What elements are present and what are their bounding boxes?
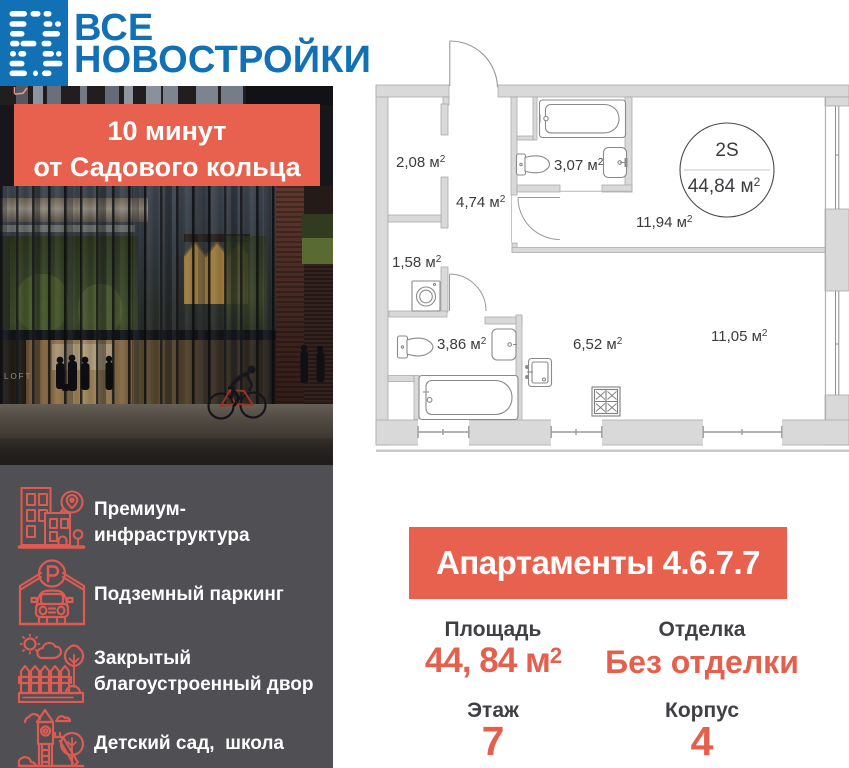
svg-text:3,86 м2: 3,86 м2 xyxy=(437,336,487,353)
svg-text:2,08 м2: 2,08 м2 xyxy=(396,154,446,171)
svg-text:2S: 2S xyxy=(715,140,738,161)
svg-text:11,05 м2: 11,05 м2 xyxy=(711,328,768,345)
svg-text:44,84 м2: 44,84 м2 xyxy=(688,175,761,197)
svg-text:1,58 м2: 1,58 м2 xyxy=(392,254,442,271)
svg-text:6,52 м2: 6,52 м2 xyxy=(573,336,623,353)
svg-text:3,07 м2: 3,07 м2 xyxy=(554,157,604,174)
svg-text:4,74 м2: 4,74 м2 xyxy=(456,194,506,211)
svg-text:11,94 м2: 11,94 м2 xyxy=(636,214,693,231)
